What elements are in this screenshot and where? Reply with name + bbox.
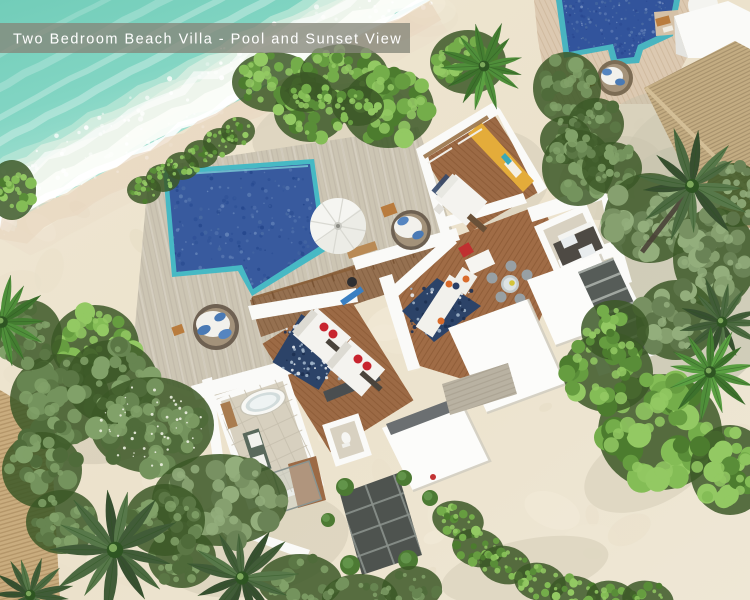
svg-text:Two Bedroom Beach Villa - Pool: Two Bedroom Beach Villa - Pool and Sunse…	[13, 32, 402, 48]
